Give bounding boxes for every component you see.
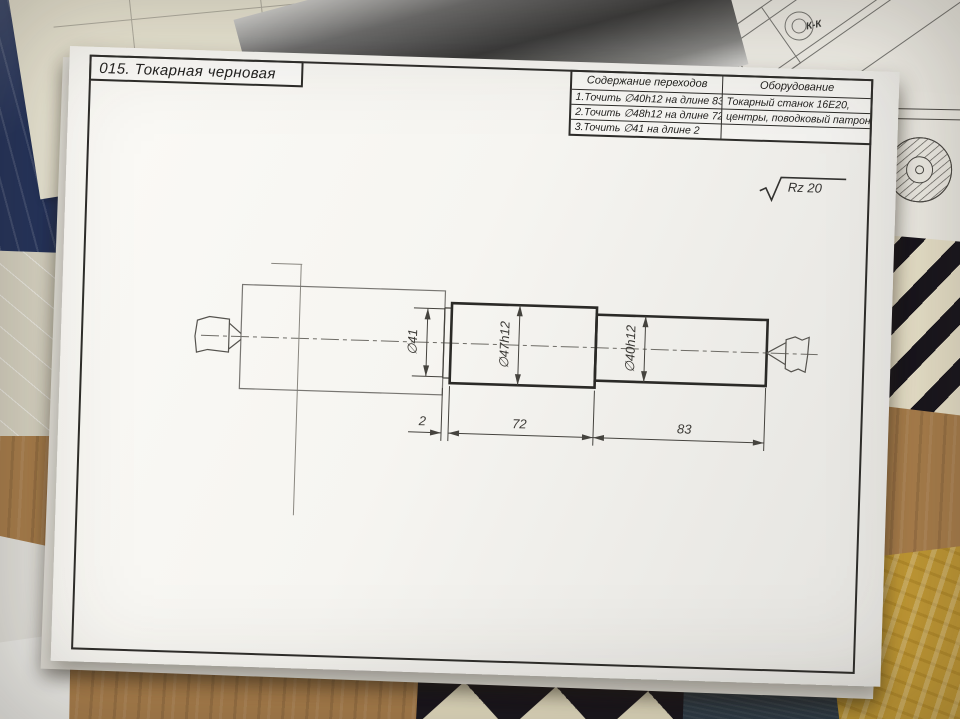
right-length-label: 83 xyxy=(677,421,693,436)
neck-length-label: 2 xyxy=(418,413,427,428)
dim-neck-length xyxy=(408,429,441,436)
right-diameter-label: ∅40h12 xyxy=(622,324,639,373)
operation-card-sheet: 015. Токарная черновая Содержание перехо… xyxy=(51,46,900,687)
middle-diameter-label: ∅47h12 xyxy=(496,320,513,369)
dim-right-diameter xyxy=(641,316,649,382)
photo-of-operation-sheet: К-К 015. Токарная черновая xyxy=(0,0,960,719)
dim-middle-length xyxy=(448,430,593,441)
neck-diameter-label: ∅41 xyxy=(404,329,420,355)
middle-length-label: 72 xyxy=(512,416,528,431)
shaft-drawing: ∅41 ∅47h12 ∅40h12 2 xyxy=(51,46,900,687)
